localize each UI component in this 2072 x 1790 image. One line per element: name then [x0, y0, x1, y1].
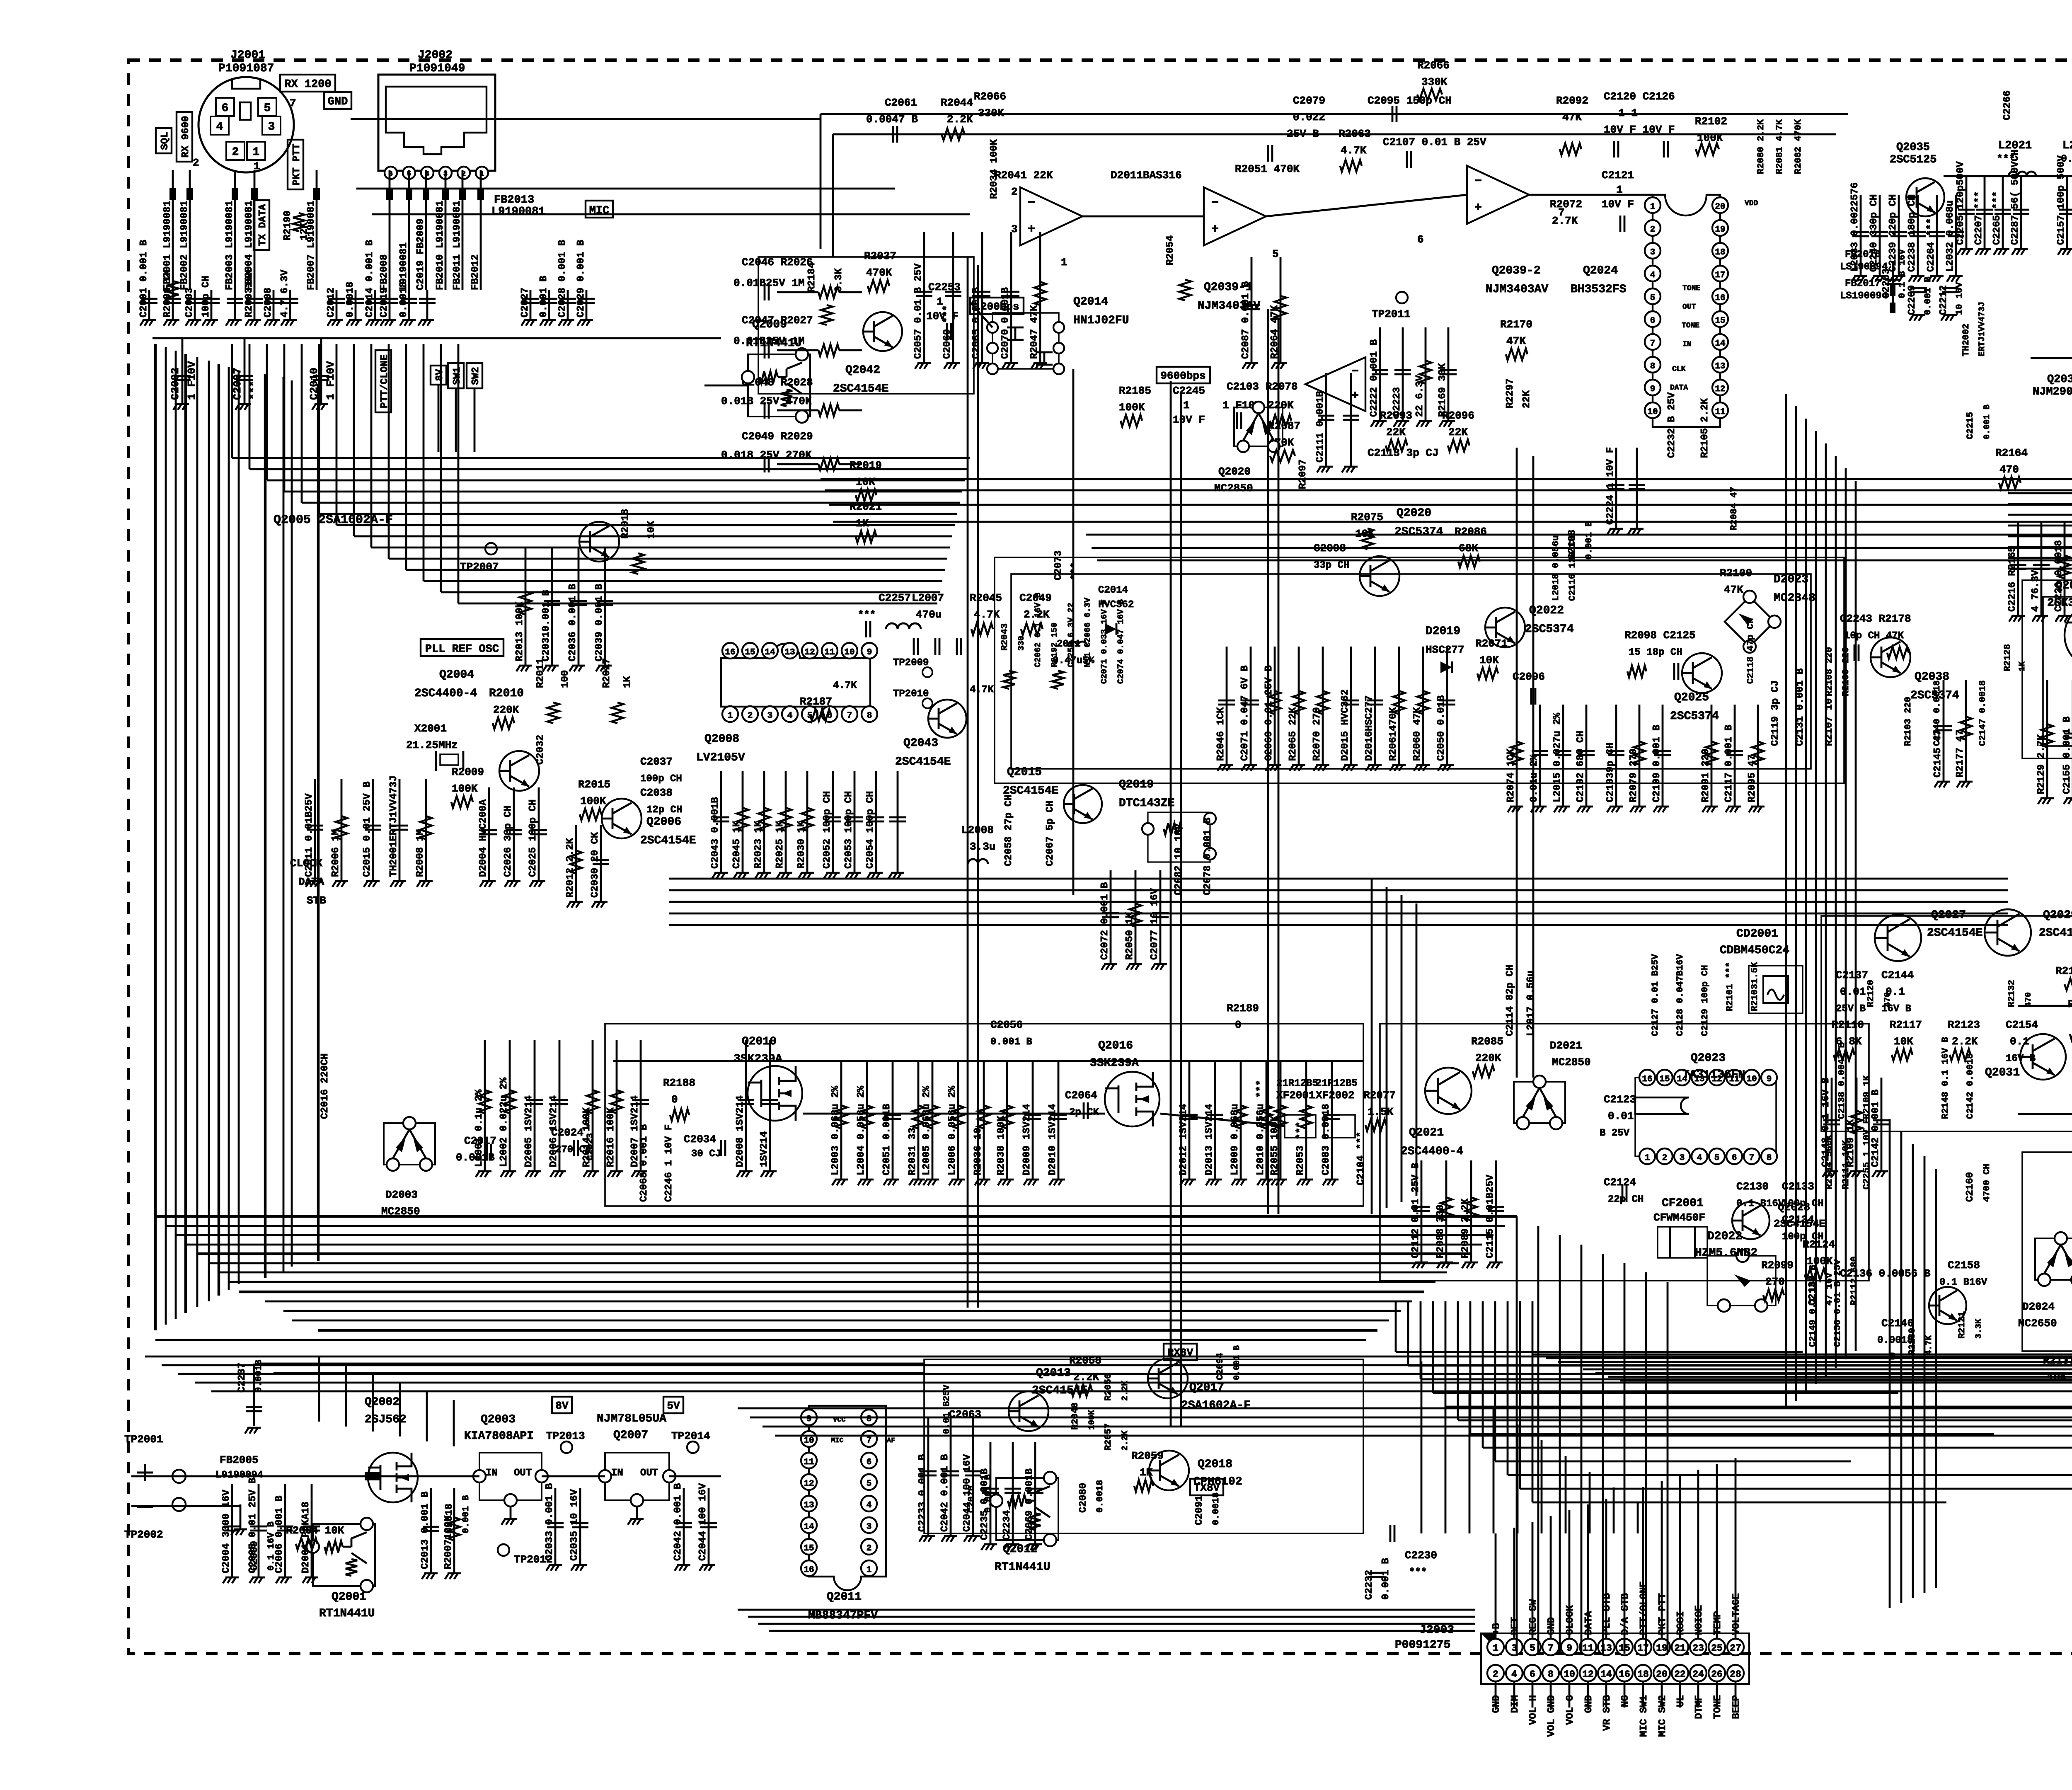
svg-text:DIM: DIM [1510, 1695, 1521, 1713]
svg-text:15 18p CH: 15 18p CH [1629, 647, 1682, 658]
svg-text:0.001 B: 0.001 B [538, 276, 549, 317]
svg-text:33p CH: 33p CH [1314, 560, 1349, 571]
svg-text:D2011BAS316: D2011BAS316 [1111, 169, 1182, 182]
svg-text:2SC4154E: 2SC4154E [2039, 927, 2072, 940]
svg-text:GND: GND [328, 96, 348, 108]
svg-text:2.2K: 2.2K [1073, 1371, 1099, 1383]
svg-text:C2034: C2034 [684, 1133, 716, 1146]
svg-text:R2097: R2097 [1297, 459, 1309, 489]
svg-text:470K: 470K [866, 266, 892, 279]
svg-text:330: 330 [1017, 636, 1026, 651]
svg-text:12: 12 [1582, 1669, 1594, 1680]
svg-text:SW2: SW2 [470, 367, 482, 385]
svg-text:C2078 0.001 B: C2078 0.001 B [1202, 818, 1213, 895]
svg-text:17: 17 [1715, 271, 1725, 280]
svg-text:R2135 470K: R2135 470K [2055, 965, 2072, 977]
svg-text:R2009: R2009 [452, 766, 484, 778]
svg-text:470: 470 [1999, 463, 2019, 476]
svg-text:7: 7 [290, 97, 296, 109]
svg-text:C2116 120 CH: C2116 120 CH [1567, 535, 1578, 601]
svg-text:R2117: R2117 [1890, 1019, 1922, 1031]
svg-text:L2006 0.056u 2%: L2006 0.056u 2% [947, 1085, 958, 1175]
svg-text:L2007: L2007 [912, 592, 944, 604]
svg-text:R21031.5K: R21031.5K [1750, 962, 1760, 1011]
svg-text:C2087 0.001 B: C2087 0.001 B [1240, 281, 1251, 359]
svg-text:16: 16 [1715, 293, 1725, 303]
svg-text:1SV214: 1SV214 [759, 1131, 770, 1167]
svg-text:TP2014: TP2014 [671, 1430, 710, 1442]
svg-text:C2032: C2032 [535, 735, 546, 765]
svg-text:DATA: DATA [1670, 384, 1688, 392]
svg-text:R2086: R2086 [1455, 526, 1487, 538]
svg-text:13: 13 [804, 1501, 814, 1510]
svg-text:7: 7 [1548, 1643, 1554, 1654]
svg-text:−: − [1028, 196, 1035, 210]
svg-text:C2117 0.001 B: C2117 0.001 B [1723, 725, 1735, 802]
svg-text:PKT PTT: PKT PTT [291, 144, 303, 186]
svg-text:C2056: C2056 [990, 1019, 1023, 1031]
svg-text:L2015 0.027u 2%: L2015 0.027u 2% [1552, 712, 1563, 802]
svg-text:14: 14 [804, 1522, 814, 1532]
svg-text:R2092: R2092 [1556, 94, 1588, 107]
svg-text:R2138: R2138 [2068, 998, 2072, 1010]
svg-text:21R12B5: 21R12B5 [1276, 1078, 1318, 1089]
svg-text:220K: 220K [1475, 1052, 1501, 1064]
svg-text:C2245: C2245 [1173, 385, 1205, 397]
svg-text:NJM3403AV: NJM3403AV [1486, 283, 1548, 296]
svg-text:+: + [1474, 201, 1482, 215]
svg-text:Q2003: Q2003 [481, 1413, 516, 1426]
svg-text:NJM2904V: NJM2904V [2033, 386, 2072, 398]
svg-text:VDD: VDD [1745, 199, 1758, 208]
svg-text:Q2037: Q2037 [2047, 373, 2072, 386]
svg-text:L2001 0.1u 2%: L2001 0.1u 2% [474, 1089, 485, 1167]
svg-text:1: 1 [1650, 202, 1656, 212]
svg-text:R2066: R2066 [1417, 59, 1450, 72]
svg-text:8: 8 [867, 711, 872, 721]
svg-text:TP2009: TP2009 [893, 657, 929, 669]
svg-text:R2056: R2056 [1103, 1373, 1113, 1401]
svg-text:10: 10 [804, 1436, 814, 1446]
svg-text:IN: IN [1682, 340, 1692, 349]
svg-text:470: 470 [2024, 992, 2033, 1007]
svg-text:3SK239A: 3SK239A [733, 1053, 782, 1066]
svg-text:15: 15 [745, 648, 755, 657]
svg-text:8V: 8V [555, 1400, 569, 1412]
svg-text:FB2012: FB2012 [470, 254, 481, 290]
svg-text:4700 CH: 4700 CH [1982, 1164, 1992, 1202]
svg-text:0.0018: 0.0018 [1877, 1335, 1913, 1346]
svg-text:R2102: R2102 [1695, 115, 1727, 128]
svg-text:10: 10 [1647, 407, 1658, 417]
svg-text:FB2005: FB2005 [220, 1454, 259, 1466]
svg-text:470u: 470u [916, 608, 942, 621]
svg-text:8V: 8V [434, 369, 445, 381]
svg-text:1K: 1K [856, 517, 869, 530]
svg-text:25: 25 [1711, 1643, 1723, 1654]
svg-text:0.01: 0.01 [1840, 986, 1866, 998]
svg-text:9600bps: 9600bps [1160, 370, 1205, 382]
svg-text:6: 6 [1732, 1153, 1737, 1163]
svg-text:16: 16 [1642, 1075, 1652, 1084]
svg-text:R2089 2.2K: R2089 2.2K [1460, 1198, 1471, 1258]
svg-text:OUT: OUT [514, 1468, 532, 1479]
svg-text:OUT: OUT [1682, 303, 1696, 311]
svg-text:0.0047 B: 0.0047 B [866, 113, 918, 126]
svg-text:R2297: R2297 [1505, 378, 1516, 408]
svg-text:1: 1 [1645, 1153, 1650, 1163]
svg-text:C2026 33p CH: C2026 33p CH [503, 805, 514, 877]
svg-text:13: 13 [784, 648, 795, 657]
svg-text:4.7K: 4.7K [1924, 1335, 1934, 1355]
svg-text:***: *** [1070, 562, 1081, 580]
svg-text:J2002: J2002 [418, 49, 453, 62]
svg-text:C2001 0.001 B: C2001 0.001 B [138, 240, 150, 317]
svg-text:X2001: X2001 [414, 722, 447, 735]
svg-text:FB2013: FB2013 [494, 194, 534, 206]
svg-text:C2147 0.0018: C2147 0.0018 [1978, 681, 1988, 746]
svg-text:C2074 0.047 16V B: C2074 0.047 16V B [1116, 599, 1126, 684]
svg-text:XF2002: XF2002 [1316, 1089, 1355, 1102]
svg-text:0.022: 0.022 [1293, 111, 1325, 124]
svg-text:C2046 R2026: C2046 R2026 [742, 256, 813, 269]
svg-text:C2029 0.001 B: C2029 0.001 B [576, 240, 587, 317]
svg-text:220K: 220K [493, 704, 519, 716]
svg-text:L2004 0.056u 2%: L2004 0.056u 2% [856, 1085, 867, 1175]
svg-text:C2091: C2091 [1194, 1495, 1205, 1525]
svg-text:21.25MHz: 21.25MHz [406, 739, 458, 751]
svg-text:C2107 0.01 B 25V: C2107 0.01 B 25V [1383, 136, 1486, 148]
svg-text:10K: 10K [1894, 1035, 1913, 1048]
svg-text:R2070 270: R2070 270 [1312, 707, 1323, 761]
svg-text:OUT: OUT [640, 1468, 658, 1479]
svg-text:C2036 0.001 B: C2036 0.001 B [567, 584, 579, 661]
svg-text:C2007: C2007 [231, 368, 244, 400]
svg-text:D2024: D2024 [2022, 1301, 2055, 1313]
svg-text:C2216 R2165: C2216 R2165 [2007, 546, 2018, 612]
svg-text:VOLTAGE: VOLTAGE [1731, 1593, 1742, 1635]
svg-text:R2190: R2190 [282, 211, 293, 240]
svg-text:C2035 10 16V: C2035 10 16V [569, 1489, 580, 1561]
svg-text:2SC4154E: 2SC4154E [640, 834, 696, 847]
svg-text:R2065 22K: R2065 22K [1288, 707, 1299, 761]
svg-text:4: 4 [1650, 271, 1656, 280]
svg-text:Q2010: Q2010 [742, 1035, 777, 1048]
svg-text:C2137: C2137 [1836, 969, 1868, 981]
svg-text:R2121: R2121 [1957, 1311, 1967, 1339]
svg-text:−: − [1211, 196, 1219, 210]
svg-text:100K: 100K [1119, 401, 1145, 414]
svg-text:C2058 27p CH: C2058 27p CH [1003, 794, 1014, 866]
svg-text:VR STB: VR STB [1602, 1695, 1613, 1731]
svg-text:9: 9 [1566, 1643, 1572, 1654]
svg-text:3SK239A: 3SK239A [1090, 1057, 1139, 1070]
svg-text:UL: UL [1675, 1695, 1687, 1707]
svg-text:STB: STB [307, 894, 326, 907]
svg-text:J2001: J2001 [230, 49, 265, 62]
svg-text:GND: GND [1491, 1695, 1502, 1713]
svg-text:R2188: R2188 [663, 1077, 695, 1089]
svg-text:Q2020: Q2020 [1397, 507, 1431, 520]
svg-text:100K: 100K [452, 782, 478, 795]
svg-text:CLOCK: CLOCK [1565, 1605, 1576, 1635]
svg-text:10K: 10K [1479, 654, 1499, 666]
svg-text:−: − [1351, 365, 1359, 379]
svg-text:2SC5374: 2SC5374 [1394, 526, 1443, 538]
svg-text:D2008 1SV214: D2008 1SV214 [735, 1095, 746, 1167]
svg-text:22: 22 [1674, 1669, 1686, 1680]
svg-text:+: + [1211, 223, 1219, 237]
svg-text:22K: 22K [1448, 426, 1468, 438]
svg-text:1: 1 [1183, 399, 1190, 412]
svg-text:RSSI: RSSI [1675, 1611, 1687, 1635]
svg-text:0.0018: 0.0018 [1095, 1480, 1105, 1513]
svg-text:C2061: C2061 [885, 97, 917, 109]
svg-text:P0091275: P0091275 [1395, 1639, 1450, 1652]
svg-text:17: 17 [1637, 1643, 1649, 1654]
svg-text:MB88347PFV: MB88347PFV [808, 1609, 878, 1622]
svg-text:R2192 150: R2192 150 [1050, 623, 1060, 667]
svg-text:R2103 220: R2103 220 [1903, 697, 1913, 746]
svg-text:20: 20 [1715, 202, 1725, 212]
svg-text:C2037: C2037 [640, 756, 673, 768]
svg-text:MC2850: MC2850 [1214, 482, 1253, 494]
svg-text:0.01: 0.01 [1608, 1110, 1634, 1122]
svg-text:6: 6 [1530, 1669, 1535, 1680]
svg-text:10V F: 10V F [1173, 414, 1205, 426]
svg-text:C2146: C2146 [1881, 1317, 1914, 1330]
svg-text:10: 10 [844, 648, 854, 657]
svg-text:R200310K: R200310K [244, 269, 255, 317]
svg-text:1: 1 [253, 146, 260, 159]
svg-text:Q2019: Q2019 [1119, 778, 1154, 791]
svg-text:2: 2 [748, 711, 753, 721]
svg-text:TP2010: TP2010 [893, 688, 929, 700]
svg-text:FB2007 L9190081: FB2007 L9190081 [306, 201, 317, 290]
svg-text:C2114 82p CH: C2114 82p CH [1505, 964, 1516, 1036]
svg-text:FB2003 L9190081: FB2003 L9190081 [224, 201, 235, 290]
svg-text:2: 2 [193, 157, 199, 169]
svg-text:RX 1200: RX 1200 [284, 78, 331, 91]
svg-text:2SC4400-4: 2SC4400-4 [1401, 1145, 1463, 1158]
svg-text:3.3u: 3.3u [970, 841, 995, 853]
svg-text:C2103 R2078: C2103 R2078 [1227, 380, 1298, 393]
svg-text:MC2850: MC2850 [1552, 1056, 1591, 1068]
svg-text:R2037: R2037 [864, 250, 896, 262]
svg-text:FB2008: FB2008 [379, 254, 390, 290]
svg-text:C2230: C2230 [1405, 1549, 1437, 1562]
svg-text:VOL GND: VOL GND [1546, 1695, 1557, 1737]
svg-text:R2120: R2120 [1866, 980, 1876, 1007]
svg-text:2: 2 [1011, 186, 1018, 198]
svg-text:C2054 100p CH: C2054 100p CH [865, 791, 876, 869]
svg-text:R2082 470K: R2082 470K [1793, 119, 1803, 174]
svg-text:D/A STB: D/A STB [1620, 1593, 1631, 1635]
svg-text:AF: AF [887, 1437, 895, 1445]
svg-text:4: 4 [216, 121, 223, 133]
svg-text:C2233 0.001 B: C2233 0.001 B [917, 1454, 928, 1532]
svg-text:D2005 1SV214: D2005 1SV214 [523, 1095, 535, 1167]
svg-text:47K: 47K [1562, 111, 1582, 124]
svg-text:C2156 0.01 B 25V: C2156 0.01 B 25V [1832, 1259, 1843, 1347]
svg-text:R2012 2.2K: R2012 2.2K [565, 838, 576, 898]
svg-text:Q2001: Q2001 [332, 1591, 366, 1603]
svg-text:C2049 R2029: C2049 R2029 [742, 430, 813, 443]
svg-text:R2123: R2123 [1948, 1019, 1980, 1031]
svg-text:22K: 22K [1521, 390, 1532, 408]
svg-text:C2071 0.033 16V F: C2071 0.033 16V F [1100, 599, 1109, 684]
svg-text:1: 1 [937, 296, 943, 308]
svg-text:TP2002: TP2002 [124, 1528, 163, 1541]
svg-text:C2142 0.001 B: C2142 0.001 B [1870, 1090, 1881, 1167]
svg-text:12: 12 [804, 648, 815, 657]
svg-text:C2129 100p CH: C2129 100p CH [1700, 965, 1710, 1036]
svg-text:14: 14 [1600, 1669, 1612, 1680]
svg-text:Q2022: Q2022 [1529, 604, 1564, 617]
svg-text:Q2014: Q2014 [1073, 296, 1108, 308]
svg-text:DTMF: DTMF [1694, 1695, 1705, 1719]
svg-text:TONE: TONE [1682, 322, 1699, 330]
svg-text:L2003 0.068u 2%: L2003 0.068u 2% [830, 1085, 841, 1175]
svg-text:2.2K: 2.2K [1121, 1431, 1130, 1451]
svg-text:SQL: SQL [160, 132, 171, 150]
svg-text:5: 5 [1650, 293, 1656, 303]
svg-text:C2082 10 16V: C2082 10 16V [1173, 824, 1184, 895]
svg-text:IN: IN [486, 1468, 498, 1479]
svg-text:NJM78L05UA: NJM78L05UA [597, 1412, 666, 1425]
svg-text:5V: 5V [667, 1400, 680, 1412]
svg-text:C2095 150p CH: C2095 150p CH [1368, 94, 1452, 107]
svg-text:27: 27 [1730, 1643, 1741, 1654]
svg-text:***: *** [858, 610, 876, 621]
svg-text:8: 8 [867, 1415, 872, 1424]
svg-text:+: + [1028, 223, 1035, 237]
svg-text:R2098 C2125: R2098 C2125 [1624, 629, 1696, 642]
svg-text:N11 C2066 6.3V: N11 C2066 6.3V [1083, 598, 1093, 667]
svg-text:8: 8 [1548, 1669, 1554, 1680]
svg-text:2.2K: 2.2K [1952, 1035, 1978, 1048]
svg-text:C2215: C2215 [1965, 412, 1975, 439]
svg-text:6: 6 [222, 102, 229, 115]
svg-text:Q2007: Q2007 [613, 1429, 648, 1442]
svg-text:L2022: L2022 [2062, 140, 2072, 152]
svg-text:R2100: R2100 [1720, 567, 1752, 579]
svg-text:C2076: C2076 [966, 1485, 977, 1513]
svg-text:Q2016: Q2016 [1098, 1039, 1133, 1052]
svg-text:C2158: C2158 [1948, 1259, 1980, 1272]
svg-text:R2080 2.2K: R2080 2.2K [1756, 119, 1766, 174]
svg-text:NC: NC [1620, 1695, 1631, 1707]
svg-text:GND: GND [1583, 1695, 1595, 1713]
svg-text:24: 24 [1692, 1669, 1704, 1680]
svg-text:R2189: R2189 [1227, 1002, 1259, 1015]
svg-text:18: 18 [1715, 248, 1725, 257]
svg-text:4: 4 [1697, 1153, 1702, 1163]
svg-text:C2039 0.001 B: C2039 0.001 B [594, 584, 605, 661]
svg-text:11: 11 [824, 648, 835, 657]
svg-text:4: 4 [867, 1501, 872, 1510]
svg-text:R2014 100K: R2014 100K [581, 1107, 593, 1167]
svg-text:NOISE: NOISE [1694, 1605, 1705, 1635]
svg-text:2SK3074: 2SK3074 [2047, 597, 2072, 610]
svg-text:0.0018: 0.0018 [1211, 1492, 1221, 1525]
svg-text:10K: 10K [856, 476, 875, 488]
svg-text:4.7 6.3V: 4.7 6.3V [279, 269, 290, 317]
svg-text:1K: 1K [1140, 1466, 1153, 1479]
svg-text:DET: DET [1510, 1617, 1521, 1635]
svg-text:Q2021: Q2021 [1409, 1126, 1444, 1139]
svg-text:C2142 0.0018: C2142 0.0018 [1965, 1054, 1975, 1119]
svg-text:3: 3 [767, 711, 773, 721]
svg-text:RT1N441U: RT1N441U [995, 1561, 1050, 1574]
svg-text:C2043 0.001B: C2043 0.001B [710, 797, 721, 869]
svg-text:HSC277: HSC277 [1426, 644, 1464, 656]
svg-text:R2084 47: R2084 47 [1729, 487, 1739, 530]
svg-text:9: 9 [1650, 385, 1656, 394]
svg-text:P1091087: P1091087 [218, 62, 274, 75]
svg-text:B 25V: B 25V [1600, 1128, 1630, 1139]
svg-text:7: 7 [1749, 1153, 1755, 1163]
svg-text:D2019: D2019 [1426, 625, 1460, 638]
svg-text:C2243 R2178: C2243 R2178 [1840, 613, 1911, 625]
svg-text:TP2001: TP2001 [124, 1433, 163, 1446]
svg-text:R2085: R2085 [1471, 1035, 1503, 1048]
svg-text:2SC4400-4: 2SC4400-4 [414, 687, 477, 700]
svg-text:C2038: C2038 [640, 787, 673, 799]
svg-text:100: 100 [560, 670, 571, 688]
svg-text:ERTJ1VV473J: ERTJ1VV473J [1978, 302, 1987, 356]
svg-text:C2052 100p CH: C2052 100p CH [822, 791, 833, 869]
svg-text:CLK: CLK [1672, 365, 1686, 373]
svg-text:1: 1 [1493, 1643, 1498, 1654]
svg-text:MIC: MIC [831, 1437, 844, 1445]
svg-text:C2077 10 16V: C2077 10 16V [1149, 888, 1160, 960]
svg-text:HN1J02FU: HN1J02FU [1073, 314, 1129, 327]
svg-text:C2072 0.001 B: C2072 0.001 B [1099, 882, 1111, 960]
svg-text:D2021: D2021 [1550, 1039, 1582, 1052]
svg-text:10p CH 47K: 10p CH 47K [1844, 630, 1904, 642]
svg-text:19: 19 [1715, 225, 1725, 235]
svg-text:12: 12 [1715, 385, 1725, 394]
svg-text:23: 23 [1692, 1643, 1704, 1654]
svg-text:C2123: C2123 [1604, 1093, 1636, 1106]
svg-text:1K: 1K [622, 676, 633, 688]
svg-text:C2130: C2130 [1736, 1180, 1769, 1193]
svg-text:R2043: R2043 [1000, 623, 1010, 651]
svg-text:20: 20 [1656, 1669, 1668, 1680]
svg-text:C2057 0.01 B 25V: C2057 0.01 B 25V [913, 263, 924, 359]
svg-text:C2154: C2154 [2006, 1019, 2038, 1031]
svg-text:C2157 100p 500V: C2157 100p 500V [2056, 155, 2067, 245]
svg-text:7: 7 [847, 711, 852, 721]
svg-text:C2019 FB2009: C2019 FB2009 [415, 218, 426, 290]
svg-text:Q2009: Q2009 [752, 318, 787, 331]
svg-text:5: 5 [1272, 248, 1279, 260]
svg-text:C2014: C2014 [1098, 585, 1128, 596]
svg-text:9: 9 [1767, 1075, 1772, 1084]
svg-text:C2042 0.001 B: C2042 0.001 B [939, 1454, 951, 1532]
svg-text:C2287 56( 500VCH: C2287 56( 500VCH [2010, 150, 2021, 245]
svg-text:C2109 0.001 B: C2109 0.001 B [1651, 725, 1663, 802]
svg-text:Q2008: Q2008 [704, 733, 739, 746]
svg-text:12: 12 [804, 1479, 814, 1489]
svg-text:R2105 2.2K: R2105 2.2K [1699, 398, 1711, 458]
svg-text:C2071 0.047 6V B: C2071 0.047 6V B [1239, 666, 1251, 761]
svg-text:C2266: C2266 [2002, 90, 2013, 120]
svg-text:FB2016: FB2016 [1845, 249, 1881, 260]
svg-text:C2102 680 CH: C2102 680 CH [1575, 731, 1586, 802]
svg-text:9: 9 [806, 1415, 812, 1424]
